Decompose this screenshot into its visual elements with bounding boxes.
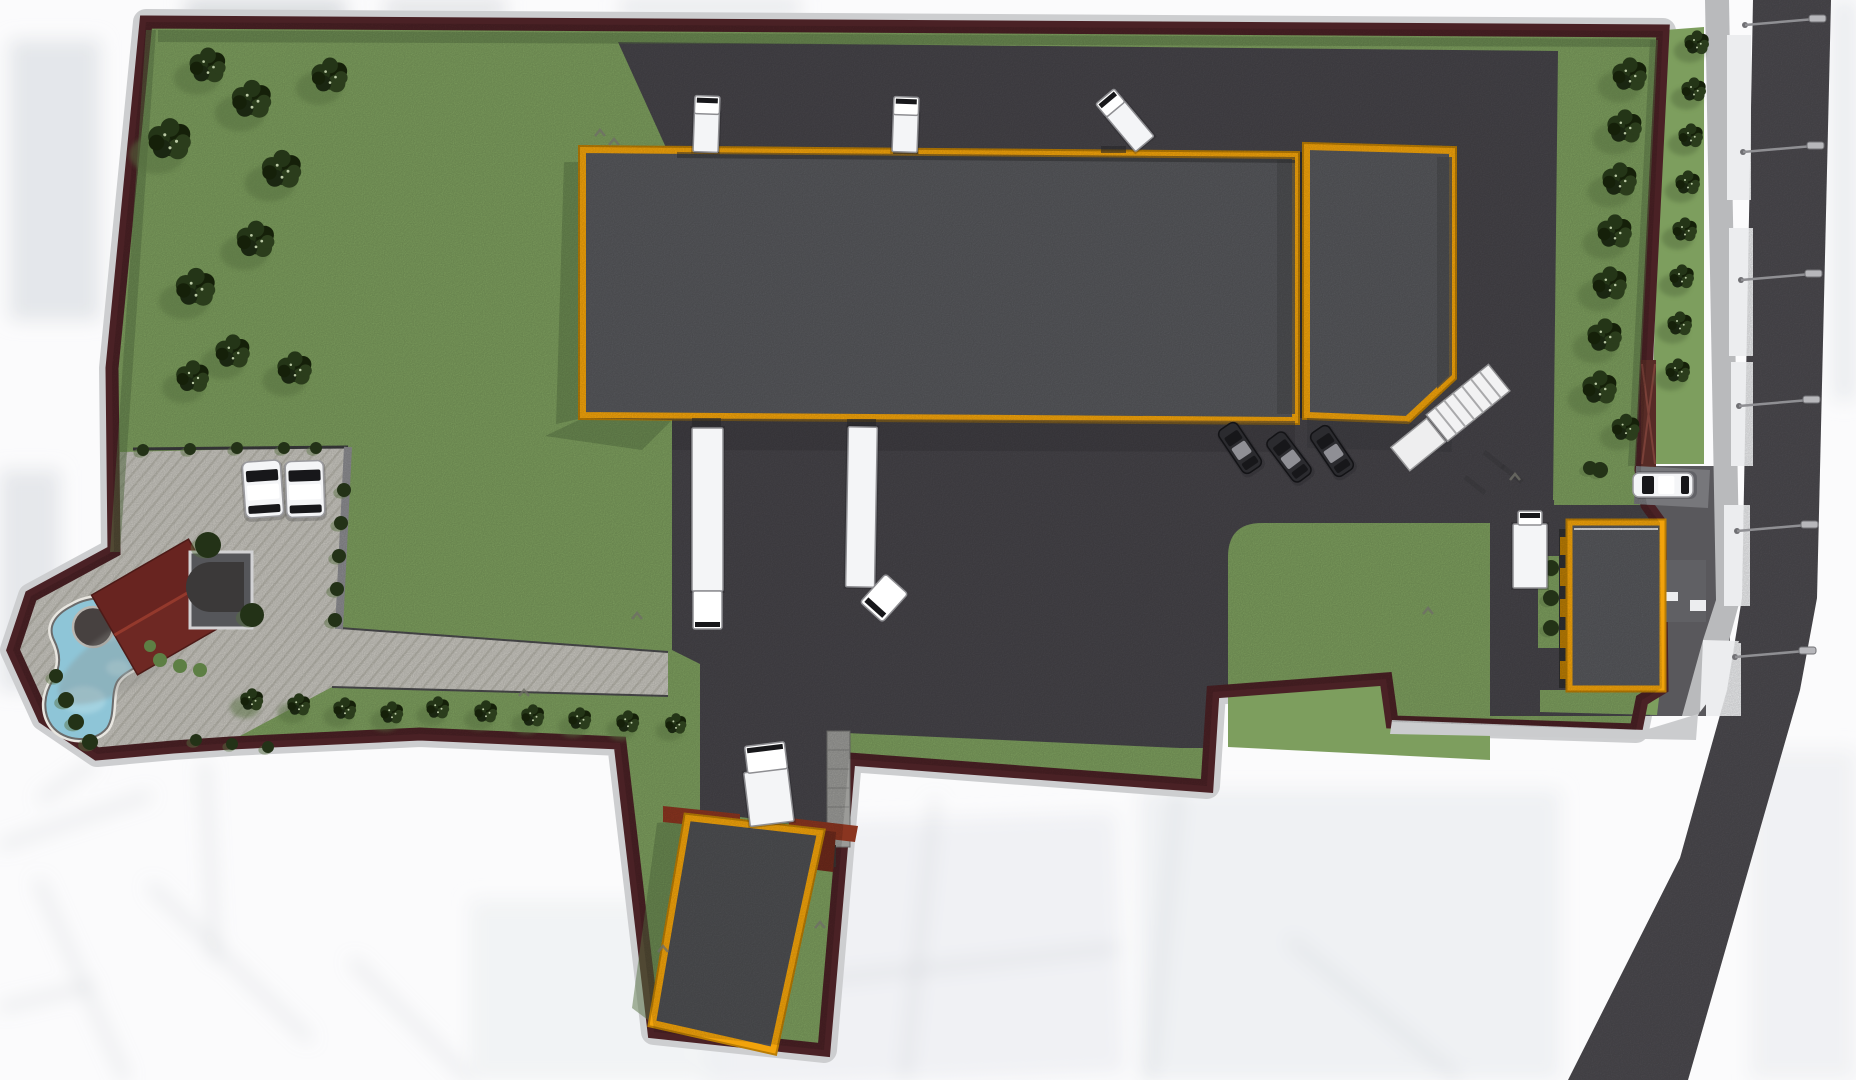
bush [195, 532, 221, 558]
tree-highlight [168, 146, 171, 149]
lamp-head [1799, 647, 1816, 654]
tree-highlight [295, 701, 297, 703]
bush [184, 443, 196, 455]
tree-highlight [576, 715, 578, 717]
tree-highlight [251, 106, 254, 109]
tree-highlight [197, 377, 199, 379]
carport-opening [186, 562, 244, 612]
tree-highlight [329, 81, 332, 84]
tree-highlight [251, 703, 253, 705]
bush [330, 582, 344, 596]
tree-highlight [348, 709, 350, 711]
site-plan-rendering [0, 0, 1856, 1080]
tree-highlight [1693, 39, 1695, 41]
bush [278, 442, 290, 454]
tree-highlight [1674, 367, 1676, 369]
tree-highlight [163, 133, 166, 136]
bush [328, 613, 342, 627]
tree-highlight [1609, 289, 1612, 292]
ghost-line [150, 885, 310, 1040]
car-white [283, 460, 327, 521]
car-rear-window [290, 504, 322, 513]
tree-highlight [1609, 336, 1612, 339]
tree-highlight [1685, 277, 1687, 279]
tree-canopy [1685, 40, 1694, 49]
tree-highlight [1619, 185, 1622, 188]
tree-highlight [334, 76, 337, 79]
tree-canopy [475, 709, 483, 717]
tree-highlight [1625, 432, 1627, 434]
car-roof [289, 484, 322, 500]
tree-highlight [276, 164, 279, 167]
car-roof [1658, 476, 1674, 494]
tree-highlight [281, 176, 284, 179]
bush [262, 741, 274, 753]
tree-highlight [1681, 371, 1683, 373]
tree-canopy [1603, 176, 1616, 189]
tree-highlight [482, 708, 484, 710]
tree-highlight [324, 70, 327, 73]
bush [68, 714, 84, 730]
bush [1543, 620, 1559, 636]
tree-highlight [675, 727, 677, 729]
tree-highlight [391, 716, 393, 718]
tree-canopy [1588, 332, 1601, 345]
tree-canopy [262, 165, 276, 179]
tree-highlight [250, 234, 253, 237]
tree-highlight [529, 712, 531, 714]
ghost-line [0, 986, 92, 1008]
tree-highlight [1624, 132, 1627, 135]
ghost-shape [10, 40, 100, 320]
tree-highlight [1629, 428, 1631, 430]
tree-highlight [583, 719, 585, 721]
tree-highlight [1687, 187, 1689, 189]
truck-trailer [692, 428, 723, 591]
bush [58, 692, 74, 708]
tree-highlight [1700, 43, 1702, 45]
ghost-shape [1833, 0, 1856, 400]
ghost-shape [620, 0, 800, 14]
tree-highlight [341, 705, 343, 707]
car-roof [247, 483, 280, 500]
tree-highlight [257, 100, 260, 103]
truck-group [890, 97, 921, 155]
tree-highlight [1688, 230, 1690, 232]
truck-trailer [693, 112, 719, 153]
tree-highlight [260, 240, 263, 243]
tree-highlight [579, 722, 581, 724]
bush [226, 738, 238, 750]
ghost-line [40, 762, 95, 800]
tree-highlight [434, 704, 436, 706]
tree-highlight [207, 71, 210, 74]
tree-highlight [1604, 341, 1607, 344]
tree-highlight [1615, 175, 1618, 178]
tree-highlight [441, 708, 443, 710]
tree-highlight [1681, 281, 1683, 283]
tree-highlight [624, 718, 626, 720]
bush [334, 516, 348, 530]
tree-highlight [201, 288, 204, 291]
tree-highlight [1697, 90, 1699, 92]
tree-canopy [237, 235, 251, 249]
tree-canopy [1668, 321, 1677, 330]
truck-group [1511, 511, 1549, 590]
tree-highlight [1599, 393, 1602, 396]
tree-canopy [1612, 425, 1622, 435]
lamp-head [1805, 270, 1822, 277]
tree-canopy [1670, 274, 1679, 283]
tree-highlight [212, 66, 215, 69]
tree-highlight [1693, 94, 1695, 96]
truck-windshield [695, 622, 720, 627]
truck-trailer [744, 767, 794, 826]
car-white [240, 460, 286, 523]
tree-highlight [485, 715, 487, 717]
tree-highlight [627, 725, 629, 727]
tree-highlight [1678, 273, 1680, 275]
bush-light [153, 653, 167, 667]
tree-canopy [278, 365, 291, 378]
tree-highlight [192, 382, 194, 384]
tree-highlight [1683, 324, 1685, 326]
tree-canopy [216, 348, 229, 361]
truck-windshield [1520, 513, 1540, 518]
tree-highlight [1622, 424, 1624, 426]
tree-highlight [1684, 234, 1686, 236]
tree-highlight [1690, 86, 1692, 88]
bush [137, 444, 149, 456]
tree-highlight [536, 716, 538, 718]
tree-canopy [1682, 87, 1691, 96]
lamp-head [1809, 15, 1826, 22]
bush [82, 734, 98, 750]
tree-canopy [665, 721, 673, 729]
tree-highlight [294, 374, 297, 377]
tree-canopy [1666, 368, 1675, 377]
tree-highlight [190, 282, 193, 285]
tree-highlight [1614, 284, 1617, 287]
tree-canopy [1679, 133, 1688, 142]
tree-highlight [631, 722, 633, 724]
car-windshield [1642, 476, 1654, 494]
tree-highlight [1600, 331, 1603, 334]
tree-highlight [290, 364, 293, 367]
ghost-line [0, 795, 150, 846]
bush [1543, 590, 1559, 606]
tree-canopy [288, 702, 296, 710]
tree-highlight [246, 94, 249, 97]
tree-canopy [1676, 180, 1685, 189]
tree-highlight [388, 709, 390, 711]
truck-trailer [1513, 524, 1547, 588]
truck-trailer [892, 113, 918, 153]
tree-highlight [299, 369, 302, 372]
bush [240, 603, 264, 627]
truck-group [691, 96, 722, 155]
tree-highlight [237, 352, 240, 355]
ghost-line [352, 960, 470, 1080]
truck-windshield [697, 98, 718, 104]
tree-highlight [532, 719, 534, 721]
truck-group [844, 425, 880, 590]
tree-highlight [202, 60, 205, 63]
tree-highlight [1595, 383, 1598, 386]
lamp-head [1807, 142, 1824, 149]
ghost-shape [1140, 790, 1560, 1080]
tree-canopy [617, 719, 625, 727]
bush [49, 669, 63, 683]
tree-canopy [241, 697, 249, 705]
tree-canopy [381, 710, 389, 718]
tree-highlight [1687, 132, 1689, 134]
tree-highlight [489, 712, 491, 714]
tree-canopy [1583, 384, 1596, 397]
tree-highlight [395, 713, 397, 715]
bush [310, 442, 322, 454]
tree-highlight [1681, 226, 1683, 228]
truck-windshield [896, 99, 917, 105]
tree-canopy [522, 713, 530, 721]
tree-highlight [1676, 320, 1678, 322]
tree-highlight [1694, 136, 1696, 138]
tree-canopy [1608, 123, 1621, 136]
tree-highlight [175, 140, 178, 143]
car-on-road [1633, 471, 1697, 499]
tree-canopy [190, 62, 203, 75]
tree-highlight [1691, 183, 1693, 185]
tree-highlight [302, 705, 304, 707]
tree-highlight [1690, 140, 1692, 142]
ghost-line [38, 880, 126, 1080]
car-windshield [246, 469, 279, 482]
tree-highlight [188, 372, 190, 374]
tree-highlight [1610, 227, 1613, 230]
tree-canopy [1598, 228, 1611, 241]
tree-highlight [298, 708, 300, 710]
tree-canopy [1593, 280, 1606, 293]
tree-highlight [1629, 80, 1632, 83]
tree-highlight [1629, 127, 1632, 130]
tree-highlight [672, 720, 674, 722]
tree-canopy [312, 72, 325, 85]
car-rear-window [1681, 476, 1689, 494]
truck-trailer [846, 427, 878, 587]
tree-highlight [678, 724, 680, 726]
parking-bay [1727, 35, 1751, 200]
bush [337, 483, 351, 497]
tree-canopy [1673, 227, 1682, 236]
tree-canopy [176, 283, 190, 297]
lamp-head [1803, 396, 1820, 403]
tree-canopy [177, 373, 189, 385]
bush [1583, 461, 1597, 475]
bush-light [173, 659, 187, 673]
tree-highlight [1679, 328, 1681, 330]
bush [190, 734, 202, 746]
bush-light [144, 640, 156, 652]
tree-highlight [1625, 70, 1628, 73]
tree-canopy [569, 716, 577, 724]
tree-highlight [255, 246, 258, 249]
sidewalk-stub [1690, 600, 1706, 611]
tree-highlight [1624, 180, 1627, 183]
east-driveway [1662, 560, 1706, 622]
ghost-line [205, 762, 215, 958]
tree-canopy [1613, 71, 1626, 84]
site-plan-canvas [0, 0, 1856, 1080]
truck-group [690, 426, 725, 629]
tree-highlight [1677, 375, 1679, 377]
bush [231, 442, 243, 454]
tree-highlight [1620, 122, 1623, 125]
tree-highlight [232, 357, 235, 360]
tree-canopy [427, 705, 435, 713]
tree-highlight [195, 294, 198, 297]
tree-highlight [1684, 179, 1686, 181]
tree-canopy [334, 706, 342, 714]
bush [332, 549, 346, 563]
tree-highlight [437, 711, 439, 713]
tree-highlight [255, 700, 257, 702]
car-windshield [288, 469, 320, 481]
tree-highlight [287, 170, 290, 173]
bush-light [193, 663, 207, 677]
tree-highlight [1634, 75, 1637, 78]
tree-canopy [149, 135, 165, 151]
tree-highlight [1605, 279, 1608, 282]
tree-highlight [228, 347, 231, 350]
tree-canopy [232, 95, 246, 109]
lamp-head [1801, 521, 1818, 528]
tree-highlight [344, 712, 346, 714]
tree-highlight [1619, 232, 1622, 235]
tree-highlight [1614, 237, 1617, 240]
tree-highlight [248, 696, 250, 698]
tree-highlight [1696, 47, 1698, 49]
tree-highlight [1604, 388, 1607, 391]
